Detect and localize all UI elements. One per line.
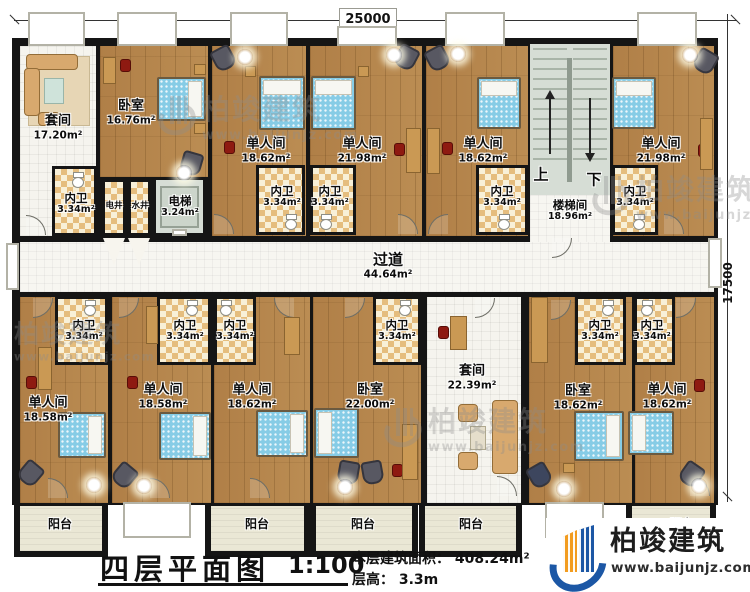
room-label-balcony: 阳台 <box>459 518 483 532</box>
room-label-bathroom: 内卫3.34m² <box>483 185 521 209</box>
bed <box>259 76 305 130</box>
bed <box>574 411 624 461</box>
room-label-bedroom-top: 卧室16.76m² <box>107 100 156 127</box>
wall-unit-red <box>438 326 449 339</box>
company-logo-icon <box>548 522 604 582</box>
ceiling-light <box>176 165 192 181</box>
room-label-bedroom-b2: 卧室18.62m² <box>554 385 603 412</box>
title-underline <box>98 583 348 586</box>
room-label-bathroom: 内卫3.34m² <box>65 319 103 343</box>
room-label-corridor: 过道44.64m² <box>364 251 413 280</box>
bed <box>477 77 521 129</box>
ceiling-light <box>691 478 707 494</box>
toilet <box>320 214 332 230</box>
toilet <box>186 300 198 316</box>
wall-unit-red <box>127 376 138 389</box>
bed <box>256 410 308 457</box>
wall-unit-red <box>120 59 131 72</box>
bed <box>628 411 674 455</box>
stair-up-label: 上 <box>533 166 548 183</box>
window <box>445 12 505 46</box>
nightstand <box>245 66 256 77</box>
room-label-shaft-electric: 电井 <box>105 202 122 212</box>
room-label-bathroom: 内卫3.34m² <box>378 319 416 343</box>
room-label-single-t4: 单人间21.98m² <box>637 138 686 165</box>
floor-area-row: 本层建筑面积： 408.24m² <box>352 548 530 568</box>
sofa <box>492 400 518 474</box>
room-label-bathroom: 内卫3.34m² <box>311 185 349 209</box>
room-label-single-b2: 单人间18.58m² <box>139 384 188 411</box>
elevator-door <box>172 229 187 236</box>
armchair <box>458 452 478 470</box>
bed <box>314 408 359 458</box>
toilet <box>285 214 297 230</box>
wall-unit-red <box>224 141 235 154</box>
room-label-single-t3: 单人间18.62m² <box>459 138 508 165</box>
ceiling-light <box>136 478 152 494</box>
stair-arrow-down <box>589 98 591 154</box>
toilet <box>72 172 84 188</box>
room-label-bathroom: 内卫3.34m² <box>216 319 254 343</box>
toilet <box>84 300 96 316</box>
room-label-single-t1: 单人间18.62m² <box>242 138 291 165</box>
ceiling-light <box>682 47 698 63</box>
bed <box>159 412 211 460</box>
room-label-bathroom: 内卫3.34m² <box>581 319 619 343</box>
ceiling-light <box>86 477 102 493</box>
nightstand <box>194 64 206 75</box>
room-label-single-b4: 单人间18.62m² <box>643 384 692 411</box>
room-label-elevator: 电梯3.24m² <box>161 195 199 219</box>
stair-rail <box>567 58 572 182</box>
room-label-single-t2: 单人间21.98m² <box>338 138 387 165</box>
coffee-table <box>44 78 64 104</box>
room-label-stairwell: 楼梯间18.96m² <box>548 199 592 223</box>
wall-unit-red <box>694 379 705 392</box>
room-label-bathroom: 内卫3.34m² <box>633 319 671 343</box>
room-label-balcony: 阳台 <box>245 518 269 532</box>
floor-height-row: 层高： 3.3m <box>352 569 438 589</box>
nightstand <box>194 123 206 134</box>
desk <box>450 316 467 350</box>
armchair <box>458 404 478 422</box>
right-dimension-line <box>727 14 728 502</box>
wardrobe <box>531 297 548 363</box>
room-label-bathroom: 内卫3.34m² <box>616 185 654 209</box>
nightstand <box>563 463 575 473</box>
room-label-shaft-water: 水井 <box>131 202 148 212</box>
toilet <box>220 300 232 316</box>
room-label-bathroom: 内卫3.34m² <box>57 192 95 216</box>
arrow-down-icon <box>585 153 595 162</box>
window <box>123 502 191 538</box>
bed <box>311 76 356 130</box>
floor-plan: 25000 17500 <box>0 0 750 592</box>
window <box>337 26 397 46</box>
sofa <box>24 68 40 116</box>
window <box>6 243 19 290</box>
arrow-up-icon <box>545 90 555 99</box>
toilet <box>633 214 645 230</box>
toilet <box>498 214 510 230</box>
window <box>28 12 85 46</box>
desk <box>700 118 713 170</box>
window <box>708 238 722 288</box>
company-website: www.baijunjz.com <box>611 560 750 576</box>
ceiling-light <box>386 47 402 63</box>
desk <box>427 128 440 174</box>
room-label-suite-bottom: 套间22.39m² <box>448 365 497 392</box>
desk <box>284 317 300 355</box>
room-label-suite-top: 套间17.20m² <box>34 115 83 142</box>
room-label-bathroom: 内卫3.34m² <box>166 319 204 343</box>
toilet <box>602 300 614 316</box>
drawing-title: 四层平面图 <box>100 546 270 588</box>
window <box>117 12 177 46</box>
cabinet <box>38 347 52 390</box>
room-label-bathroom: 内卫3.34m² <box>263 185 301 209</box>
cabinet <box>146 306 158 344</box>
coffee-table <box>470 426 486 450</box>
ceiling-light <box>556 481 572 497</box>
wall-unit-red <box>442 142 453 155</box>
nightstand <box>358 66 369 77</box>
desk <box>406 128 421 173</box>
ceiling-light <box>450 46 466 62</box>
room-label-balcony: 阳台 <box>351 518 375 532</box>
toilet <box>399 300 411 316</box>
room-label-single-b1: 单人间18.58m² <box>24 397 73 424</box>
desk <box>402 424 418 480</box>
bed <box>157 77 206 121</box>
stair-down-label: 下 <box>586 171 601 188</box>
ceiling-light <box>337 479 353 495</box>
room-label-bedroom-b1: 卧室22.00m² <box>346 384 395 411</box>
ceiling-light <box>237 49 253 65</box>
window <box>637 12 697 46</box>
right-dimension-label: 17500 <box>721 261 735 305</box>
wall-unit-red <box>394 143 405 156</box>
company-name: 柏竣建筑 <box>610 528 726 556</box>
room-label-balcony: 阳台 <box>48 518 72 532</box>
wall-unit-red <box>26 376 37 389</box>
stair-arrow-up <box>549 98 551 154</box>
window <box>230 12 288 46</box>
toilet <box>641 300 653 316</box>
brand-block: 柏竣建筑 www.baijunjz.com <box>546 518 750 588</box>
room-label-single-b3: 单人间18.62m² <box>228 384 277 411</box>
cabinet <box>103 57 116 84</box>
bed <box>612 77 656 129</box>
